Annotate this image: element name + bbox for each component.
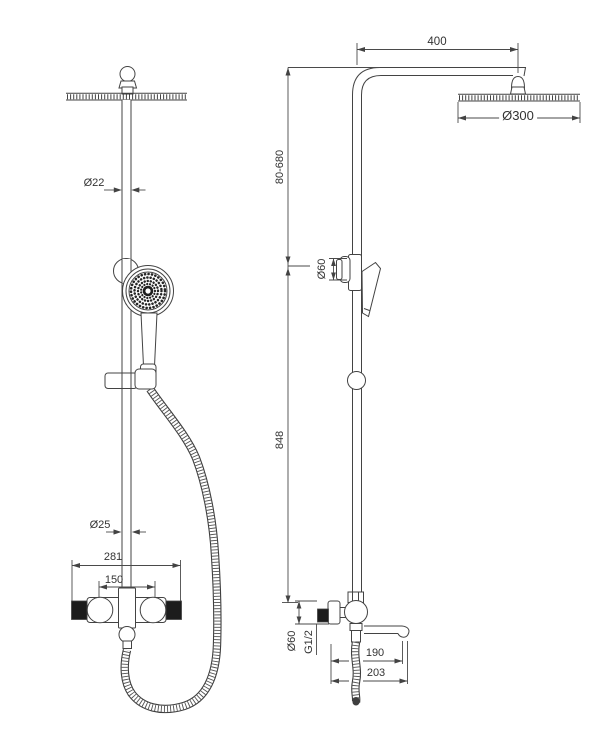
hose-outlet-nut-front (119, 627, 135, 643)
side-view (318, 68, 581, 706)
dim-label-spout-total: 203 (367, 667, 385, 679)
dim-knob-diameter (295, 601, 317, 624)
front-view (66, 67, 217, 709)
dim-label-arm-reach: 400 (427, 36, 446, 48)
dim-label-lower-pipe-diameter: Ø25 (90, 519, 111, 531)
dim-label-head-diameter: Ø300 (499, 110, 537, 122)
spout-side (364, 626, 409, 637)
slider-knob-side (348, 372, 366, 390)
dim-label-pipe-diameter: Ø22 (84, 177, 105, 189)
ball-joint-side (512, 77, 525, 89)
hand-shower-handle-front (141, 313, 157, 366)
hose-end-cap (353, 697, 360, 706)
dim-label-spout-reach: 190 (366, 647, 384, 659)
technical-drawing-page: 400 Ø300 Ø22 80-680 Ø60 848 Ø25 281 150 … (0, 0, 616, 749)
valve-body-side (345, 601, 368, 624)
riser-and-arm-side (353, 68, 526, 593)
dim-label-rail-height: 848 (274, 431, 286, 449)
rain-head-front (66, 67, 187, 101)
rain-head-side (458, 77, 580, 102)
mixer-valve-front (72, 588, 182, 649)
mixer-left-handle (72, 601, 88, 620)
dim-label-knob-diameter: Ø60 (286, 631, 298, 652)
ball-joint-front (120, 67, 135, 82)
dim-label-thread: G1/2 (303, 630, 315, 654)
dim-label-holder-range: 80-680 (274, 150, 286, 184)
shower-hose-front (125, 389, 218, 709)
shower-hose-side (353, 642, 360, 706)
dim-label-handshower-diameter: Ø60 (316, 259, 328, 280)
mixer-knob-side (318, 609, 329, 622)
riser-rail-front (122, 100, 131, 598)
dim-label-mixer-width: 281 (104, 551, 122, 563)
dim-label-inlet-spacing: 150 (105, 574, 123, 586)
mixer-right-handle (166, 601, 182, 620)
dim-vertical-chain (282, 68, 380, 604)
